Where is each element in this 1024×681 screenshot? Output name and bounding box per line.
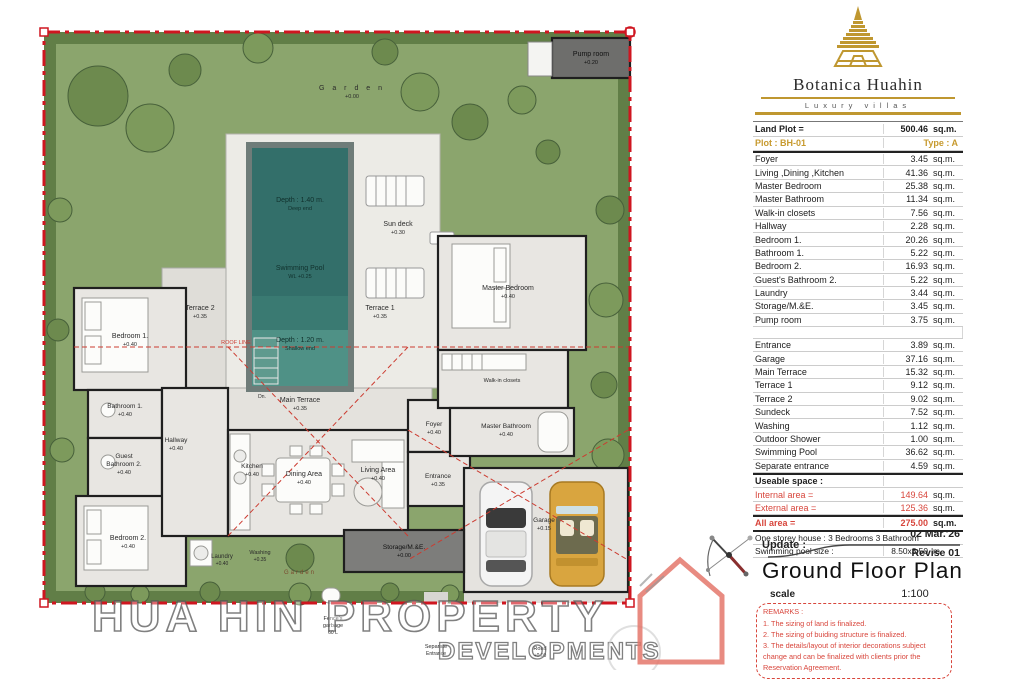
area-name: Hallway [753, 221, 884, 231]
area-unit: sq.m. [933, 275, 963, 285]
external-areas-list: Entrance 3.89 sq.m. Garage 37.16 sq.m. M… [753, 339, 963, 473]
label-pool-deep-sub: Deep end [288, 206, 312, 212]
label-master-bathroom-level: +0.40 [499, 432, 513, 438]
area-row: Bedroom 1. 20.26 sq.m. [753, 233, 963, 246]
label-kitchen: Kitchen [241, 463, 263, 470]
scale-label: scale [770, 589, 795, 600]
label-kitchen-level: +0.40 [245, 472, 259, 478]
internal-areas-list: Foyer 3.45 sq.m. Living ,Dining ,Kitchen… [753, 151, 963, 327]
label-terrace2-level: +0.35 [193, 314, 207, 320]
area-name: Bedroom 1. [753, 235, 884, 245]
land-plot-value: 500.46 [884, 124, 933, 134]
label-foyer-level: +0.40 [427, 430, 441, 436]
area-unit: sq.m. [933, 221, 963, 231]
scale-value: 1:100 [885, 588, 945, 600]
area-name: Bathroom 1. [753, 248, 884, 258]
area-unit: sq.m. [933, 168, 963, 178]
area-name: Terrace 1 [753, 380, 884, 390]
area-unit: sq.m. [933, 447, 963, 457]
label-pool-shallow-sub: Shallow end [285, 346, 315, 352]
label-garden2: Garden [284, 570, 316, 576]
remark-item-2: 2. The sizing of buiding structure is fi… [763, 630, 945, 641]
area-row: Walk-in closets 7.56 sq.m. [753, 207, 963, 220]
area-unit: sq.m. [933, 461, 963, 471]
label-pool-deep: Depth : 1.40 m. [276, 197, 324, 204]
all-area-unit: sq.m. [933, 518, 963, 528]
label-pool-dn: Dn. [258, 394, 266, 400]
area-unit: sq.m. [933, 340, 963, 350]
label-entrance: Entrance [425, 473, 451, 480]
area-unit: sq.m. [933, 394, 963, 404]
external-area-row: External area = 125.36 sq.m. [753, 502, 963, 515]
area-unit: sq.m. [933, 288, 963, 298]
area-row: Foyer 3.45 sq.m. [753, 153, 963, 166]
area-unit: sq.m. [933, 367, 963, 377]
label-roof-line: ROOF LINE [221, 340, 251, 346]
internal-area-unit: sq.m. [933, 490, 963, 500]
drawing-title: Ground Floor Plan [762, 558, 972, 584]
area-name: Living ,Dining ,Kitchen [753, 168, 884, 178]
label-pool-shallow: Depth : 1.20 m. [276, 337, 324, 344]
site-plan: G a r d e n +0.00 Pump room +0.20 Sun de… [0, 0, 700, 681]
area-unit: sq.m. [933, 380, 963, 390]
watermark-line1: HUA HIN PROPERTY [92, 592, 652, 642]
label-dining: Dining Area [286, 471, 322, 478]
main-terrace [226, 388, 432, 430]
area-unit: sq.m. [933, 434, 963, 444]
area-value: 3.45 [884, 154, 933, 164]
label-swimming-pool-wl: WL +0.25 [288, 274, 312, 280]
area-row: Entrance 3.89 sq.m. [753, 339, 963, 352]
area-row: Sundeck 7.52 sq.m. [753, 406, 963, 419]
area-value: 7.56 [884, 208, 933, 218]
label-sun-deck: Sun deck [383, 221, 413, 228]
internal-area-value: 149.64 [884, 490, 933, 500]
area-name: Guest's Bathroom 2. [753, 275, 884, 285]
internal-area-label: Internal area = [753, 490, 884, 500]
area-value: 4.59 [884, 461, 933, 471]
label-living-level: +0.40 [371, 476, 385, 482]
label-walkin-closets: Walk-in closets [484, 378, 521, 384]
room-guest-bathroom [88, 438, 162, 500]
brand-logo: Botanica Huahin Luxury villas [753, 6, 963, 115]
area-name: Garage [753, 354, 884, 364]
all-area-value: 275.00 [884, 518, 933, 528]
pagoda-icon [823, 6, 893, 68]
area-unit: sq.m. [933, 407, 963, 417]
area-name: Outdoor Shower [753, 434, 884, 444]
area-unit: sq.m. [933, 354, 963, 364]
label-bedroom1: Bedroom 1. [112, 333, 148, 340]
area-unit: sq.m. [933, 248, 963, 258]
area-name: Washing [753, 421, 884, 431]
area-name: Swimming Pool [753, 447, 884, 457]
area-name: Storage/M.&E. [753, 301, 884, 311]
label-foyer: Foyer [426, 421, 443, 428]
label-swimming-pool: Swimming Pool [276, 265, 325, 272]
label-terrace1-level: +0.35 [373, 314, 387, 320]
area-value: 3.89 [884, 340, 933, 350]
external-area-unit: sq.m. [933, 503, 963, 513]
area-unit: sq.m. [933, 181, 963, 191]
external-area-label: External area = [753, 503, 884, 513]
compass-icon [700, 526, 758, 584]
area-value: 20.26 [884, 235, 933, 245]
remark-item-1: 1. The sizing of land is finalized. [763, 619, 945, 630]
area-name: Entrance [753, 340, 884, 350]
remark-item-3: 3. The details/layout of interior decora… [763, 641, 945, 674]
area-value: 36.62 [884, 447, 933, 457]
outdoor-shower [528, 42, 552, 76]
label-bedroom1-level: +0.40 [123, 342, 137, 348]
label-dining-level: +0.40 [297, 480, 311, 486]
label-garage-level: +0.15 [537, 526, 551, 532]
land-plot-row: Land Plot = 500.46 sq.m. [753, 122, 963, 137]
area-value: 37.16 [884, 354, 933, 364]
area-row: Main Terrace 15.32 sq.m. [753, 366, 963, 379]
plot-row: Plot : BH-01 Type : A [753, 137, 963, 152]
area-row: Terrace 1 9.12 sq.m. [753, 379, 963, 392]
area-value: 3.75 [884, 315, 933, 325]
area-row: Swimming Pool 36.62 sq.m. [753, 446, 963, 459]
area-unit: sq.m. [933, 315, 963, 325]
area-value: 11.34 [884, 194, 933, 204]
summary-block: Land Plot = 500.46 sq.m. Plot : BH-01 Ty… [753, 121, 963, 151]
brand-tagline-bar [755, 112, 961, 115]
room-pump [552, 38, 630, 78]
area-row: Terrace 2 9.02 sq.m. [753, 393, 963, 406]
area-row: Pump room 3.75 sq.m. [753, 314, 963, 327]
pool-mid [252, 296, 348, 330]
area-value: 1.12 [884, 421, 933, 431]
area-name: Laundry [753, 288, 884, 298]
label-washing-level: +0.35 [254, 557, 267, 563]
label-guest-bath-1: Guest [115, 453, 133, 460]
area-unit: sq.m. [933, 194, 963, 204]
table-gap [753, 327, 963, 339]
brand-tagline: Luxury villas [753, 100, 963, 112]
label-sun-deck-level: +0.30 [391, 230, 405, 236]
area-unit: sq.m. [933, 154, 963, 164]
internal-area-row: Internal area = 149.64 sq.m. [753, 488, 963, 501]
area-value: 25.38 [884, 181, 933, 191]
useable-space-block: Useable space : Internal area = 149.64 s… [753, 473, 963, 532]
area-table: Land Plot = 500.46 sq.m. Plot : BH-01 Ty… [753, 121, 963, 558]
area-row: Bathroom 1. 5.22 sq.m. [753, 247, 963, 260]
area-name: Pump room [753, 315, 884, 325]
label-main-terrace: Main Terrace [280, 397, 320, 404]
wardrobe [442, 354, 526, 370]
label-hallway: Hallway [165, 437, 189, 444]
area-name: Bedroom 2. [753, 261, 884, 271]
area-name: Master Bathroom [753, 194, 884, 204]
label-master-bedroom-level: +0.40 [501, 294, 515, 300]
brand-name: Botanica Huahin [753, 75, 963, 95]
label-storage: Storage/M.&E. [383, 544, 425, 551]
label-storage-level: +0.00 [397, 553, 411, 559]
label-main-terrace-level: +0.35 [293, 406, 307, 412]
area-value: 15.32 [884, 367, 933, 377]
label-garden: G a r d e n [319, 85, 385, 92]
area-row: Washing 1.12 sq.m. [753, 419, 963, 432]
area-value: 1.00 [884, 434, 933, 444]
area-unit: sq.m. [933, 261, 963, 271]
label-master-bathroom: Master Bathroom [481, 423, 531, 430]
external-area-value: 125.36 [884, 503, 933, 513]
area-value: 2.28 [884, 221, 933, 231]
label-guest-bath-2: Bathroom 2. [106, 461, 142, 468]
label-guest-bath-level: +0.40 [117, 470, 131, 476]
area-value: 9.12 [884, 380, 933, 390]
area-row: Hallway 2.28 sq.m. [753, 220, 963, 233]
area-unit: sq.m. [933, 421, 963, 431]
room-hallway [162, 388, 228, 536]
label-bathroom1: Bathroom 1. [107, 403, 143, 410]
area-row: Laundry 3.44 sq.m. [753, 287, 963, 300]
label-terrace1: Terrace 1 [365, 305, 394, 312]
label-garage: Garage [533, 517, 555, 524]
plot-id: Plot : BH-01 [753, 138, 884, 148]
area-value: 5.22 [884, 248, 933, 258]
label-pump-room-level: +0.20 [584, 60, 598, 66]
floor-plan-sheet: G a r d e n +0.00 Pump room +0.20 Sun de… [0, 0, 1024, 681]
area-unit: sq.m. [933, 301, 963, 311]
label-laundry-level: +0.40 [216, 561, 229, 567]
area-row: Outdoor Shower 1.00 sq.m. [753, 433, 963, 446]
area-name: Walk-in closets [753, 208, 884, 218]
area-value: 3.44 [884, 288, 933, 298]
area-row: Guest's Bathroom 2. 5.22 sq.m. [753, 274, 963, 287]
area-value: 3.45 [884, 301, 933, 311]
remarks-box: REMARKS : 1. The sizing of land is final… [756, 603, 952, 679]
area-name: Separate entrance [753, 461, 884, 471]
label-bedroom2: Bedroom 2. [110, 535, 146, 542]
label-garden-level: +0.00 [345, 94, 359, 100]
useable-header: Useable space : [753, 476, 884, 486]
label-laundry: Laundry [211, 554, 233, 560]
sofa [352, 440, 404, 462]
area-value: 9.02 [884, 394, 933, 404]
remarks-title: REMARKS : [763, 607, 945, 618]
area-name: Terrace 2 [753, 394, 884, 404]
area-value: 5.22 [884, 275, 933, 285]
brand-rule [761, 97, 955, 99]
area-row: Storage/M.&E. 3.45 sq.m. [753, 300, 963, 313]
area-name: Sundeck [753, 407, 884, 417]
label-bathroom1-level: +0.40 [118, 412, 132, 418]
pool-steps [254, 338, 278, 384]
label-terrace2: Terrace 2 [185, 305, 214, 312]
label-hallway-level: +0.40 [169, 446, 183, 452]
label-living: Living Area [361, 467, 396, 474]
label-entrance-level: +0.35 [431, 482, 445, 488]
label-bedroom2-level: +0.40 [121, 544, 135, 550]
update-date: 02 Mar.'26 [830, 528, 960, 540]
area-unit: sq.m. [933, 208, 963, 218]
room-storage [344, 530, 464, 572]
area-unit: sq.m. [933, 235, 963, 245]
area-name: Main Terrace [753, 367, 884, 377]
area-row: Master Bathroom 11.34 sq.m. [753, 193, 963, 206]
area-value: 7.52 [884, 407, 933, 417]
all-area-label: All area = [753, 518, 884, 528]
area-value: 16.93 [884, 261, 933, 271]
area-value: 41.36 [884, 168, 933, 178]
area-row: Bedroom 2. 16.93 sq.m. [753, 260, 963, 273]
area-row: Separate entrance 4.59 sq.m. [753, 460, 963, 473]
area-row: Master Bedroom 25.38 sq.m. [753, 180, 963, 193]
area-name: Master Bedroom [753, 181, 884, 191]
useable-header-row: Useable space : [753, 475, 963, 488]
land-plot-unit: sq.m. [933, 124, 963, 134]
bathtub [538, 412, 568, 452]
label-pump-room: Pump room [573, 51, 609, 58]
label-master-bedroom: Master Bedroom [482, 285, 534, 292]
area-name: Foyer [753, 154, 884, 164]
plot-type: Type : A [884, 138, 963, 148]
area-row: Living ,Dining ,Kitchen 41.36 sq.m. [753, 166, 963, 179]
area-row: Garage 37.16 sq.m. [753, 352, 963, 365]
land-plot-label: Land Plot = [753, 124, 884, 134]
info-panel: Botanica Huahin Luxury villas Land Plot … [753, 6, 963, 558]
label-washing: Washing [249, 550, 270, 556]
